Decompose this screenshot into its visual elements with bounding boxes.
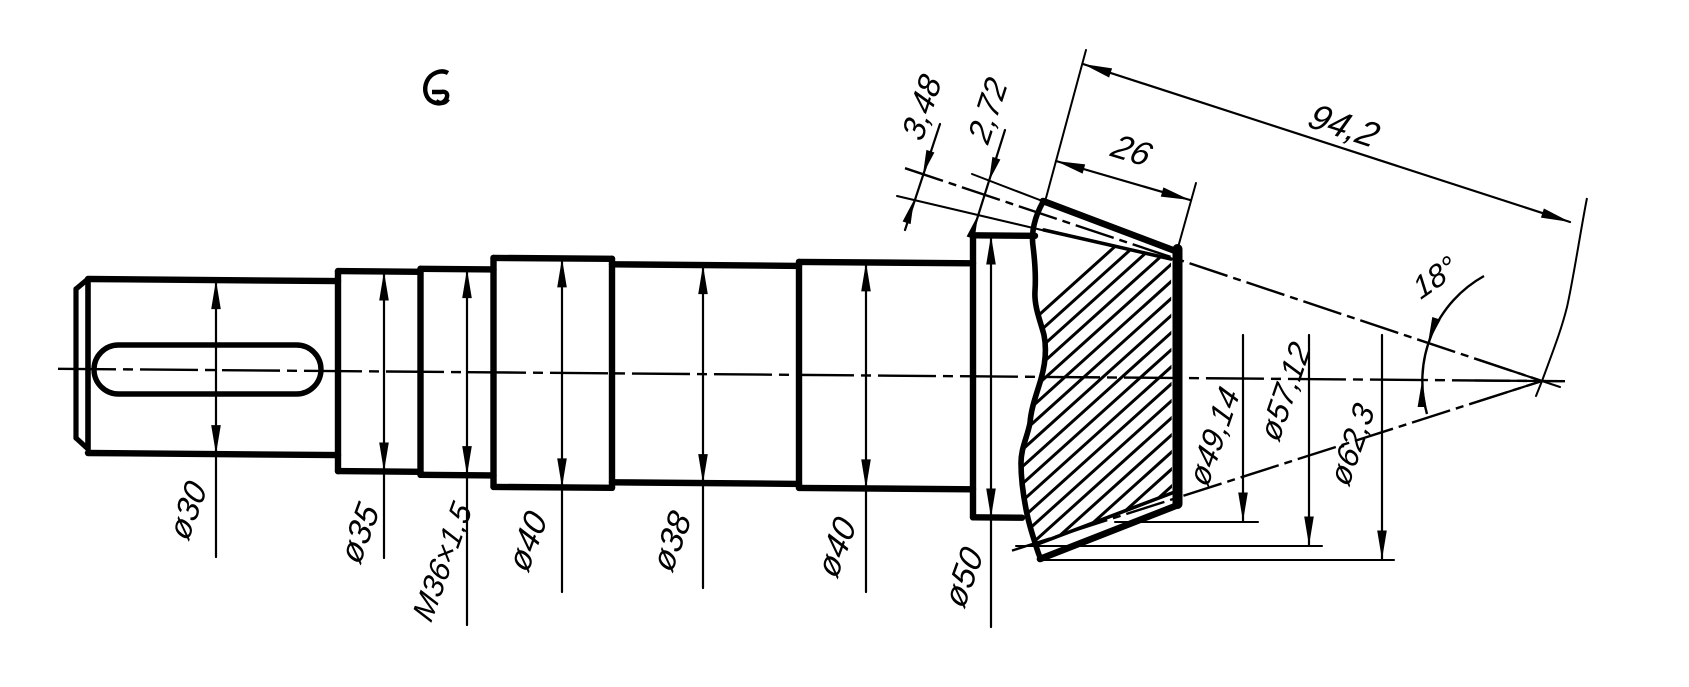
svg-text:26: 26	[1105, 128, 1158, 174]
svg-text:ø35: ø35	[333, 497, 387, 570]
svg-text:ø30: ø30	[161, 474, 214, 545]
svg-text:ø40: ø40	[810, 511, 864, 584]
svg-text:ø62,3: ø62,3	[1322, 398, 1381, 491]
svg-text:2,72: 2,72	[960, 72, 1014, 150]
svg-text:ø49,14: ø49,14	[1181, 381, 1246, 491]
svg-text:3,48: 3,48	[895, 68, 949, 145]
svg-text:ø38: ø38	[645, 505, 699, 578]
svg-text:94,2: 94,2	[1302, 96, 1386, 155]
svg-text:ø50: ø50	[937, 541, 991, 614]
svg-text:ø40: ø40	[501, 505, 555, 578]
svg-text:ø57,12: ø57,12	[1252, 336, 1317, 446]
svg-text:M36×1,5: M36×1,5	[406, 496, 479, 627]
svg-text:18°: 18°	[1407, 248, 1462, 306]
